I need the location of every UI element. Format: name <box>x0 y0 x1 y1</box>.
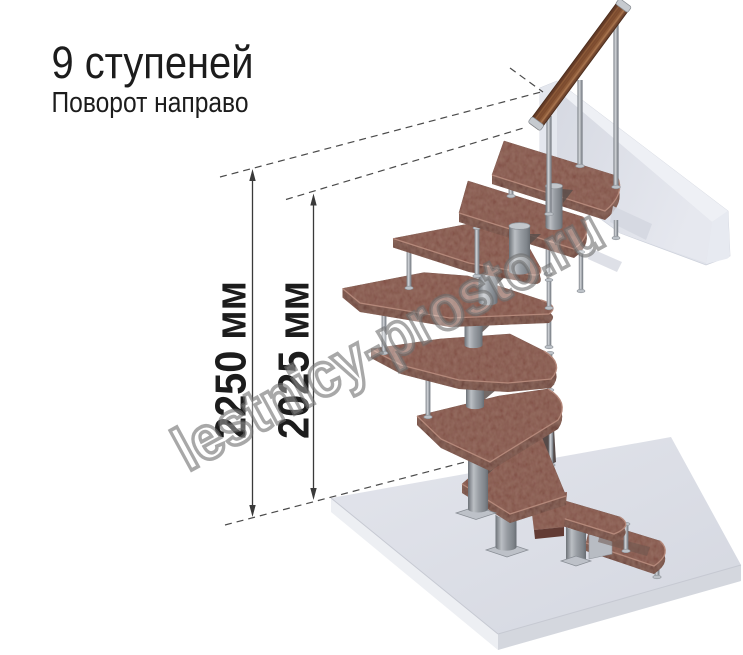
svg-text:9 ступеней: 9 ступеней <box>52 37 254 88</box>
svg-text:Поворот направо: Поворот направо <box>52 87 249 119</box>
